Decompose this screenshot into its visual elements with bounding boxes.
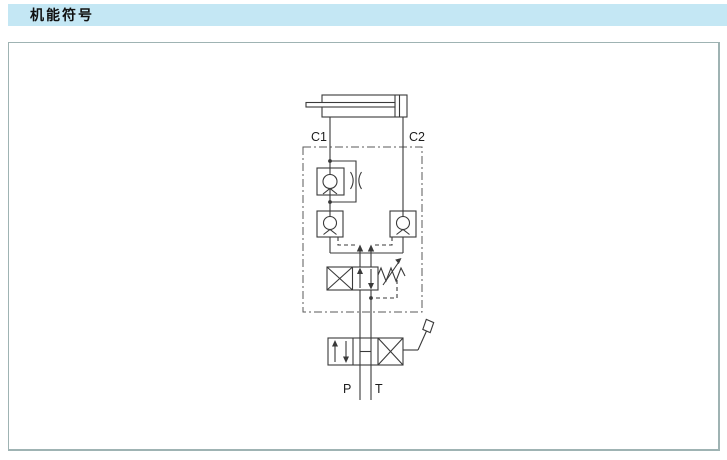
hydraulic-circuit-diagram: C1 C2 P T <box>0 0 727 460</box>
throttle-icon <box>351 172 354 189</box>
spring-icon <box>378 268 405 281</box>
manual-page: 机能符号 <box>0 0 727 460</box>
pilot-lines <box>338 237 392 245</box>
check-ball-icon <box>397 217 410 230</box>
port-label-c1: C1 <box>311 130 327 144</box>
check-ball-icon <box>323 175 337 189</box>
port-label-c2: C2 <box>409 130 425 144</box>
port-label-p: P <box>343 382 351 396</box>
one-way-throttle-valve <box>317 168 362 195</box>
piston-rod <box>306 103 395 108</box>
counterbalance-valve <box>327 258 405 300</box>
lever-icon <box>403 319 434 350</box>
port-label-t: T <box>375 382 383 396</box>
check-ball-icon <box>324 217 337 230</box>
hydraulic-cylinder <box>306 95 407 117</box>
pilot-check-valve-right <box>390 211 416 237</box>
manual-lever-directional-valve <box>328 319 434 365</box>
pilot-check-valve-left <box>317 211 343 237</box>
